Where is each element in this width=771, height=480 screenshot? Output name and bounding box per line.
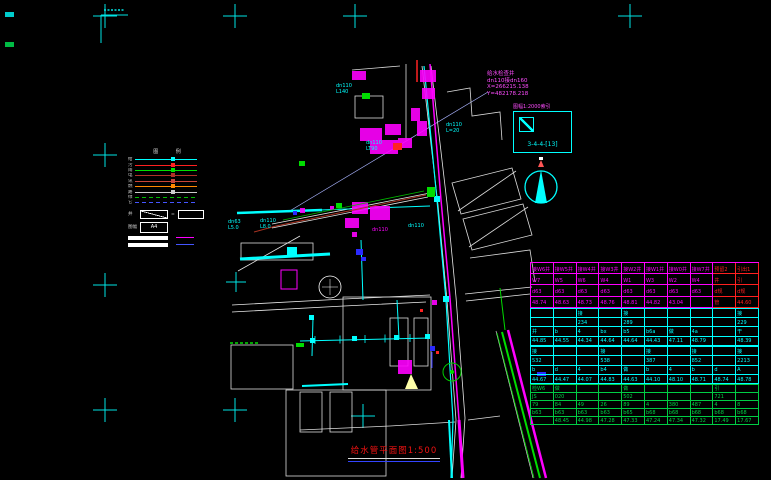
table-cell: d63 [691,285,714,296]
table-cell: 4 [713,401,736,409]
table-cell [668,309,691,318]
table-cell [645,318,668,327]
legend-marker-icon [171,173,175,177]
legend-sample-label: 井 [128,211,140,217]
table-cell: 47.32 [691,417,714,425]
table-cell: d63 [599,285,622,296]
table-cell: W2 [668,274,691,285]
table-cell: 接 [622,309,645,318]
table-cell: 502 [622,393,645,401]
table-cell: 48.39 [736,337,759,346]
ref-line: X=266215.138 [487,84,529,91]
table-cell: 引 [713,385,736,393]
table-cell: 接W2井 [622,263,645,274]
table-cell: 17.49 [713,417,736,425]
table-cell [645,393,668,401]
table-cell: b68 [645,409,668,417]
edge-mark-icon [5,12,14,17]
table-cell: 229 [736,318,759,327]
table-cell: b63 [577,409,600,417]
table-cell: 48.71 [691,375,714,384]
table-cell: W3 [645,274,668,285]
table-cell: 干 [736,327,759,336]
table-cell [691,318,714,327]
water-pipe-nodes [287,196,449,343]
table-cell: 管 [713,297,736,308]
keymap-code: 3-4-4-[13] [514,141,571,148]
table-cell: 538 [599,356,622,365]
table-cell: 做 [622,385,645,393]
table-cell: 检W6 [531,385,554,393]
table-cell: b5 [622,327,645,336]
table-cell: d63 [577,285,600,296]
table-cell: 4 [577,327,600,336]
table-cell: 48.45 [554,417,577,425]
table-cell: b68 [736,409,759,417]
legend-marker-icon [171,163,175,167]
legend-marker-icon [171,190,175,194]
table-cell [713,318,736,327]
table-cell: 44.55 [554,337,577,346]
table-cell: 48.74 [713,375,736,384]
table-cell: 487 [691,401,714,409]
table-cell [668,393,691,401]
edge-mark-icon [5,42,14,47]
table-cell: 532 [531,356,554,365]
table-cell: 47.24 [645,417,668,425]
table-cell: 44.07 [577,375,600,384]
table-cell [622,347,645,356]
table-cell [668,318,691,327]
sewer-pipe-lines [281,64,546,478]
legend-row-label: 路 [128,190,135,195]
table-cell: d63 [622,285,645,296]
table-cell: 48.81 [622,297,645,308]
table-cell: 接W5井 [554,263,577,274]
table-cell [713,347,736,356]
table-cell: 84 [554,401,577,409]
table-cell: 接 [645,347,668,356]
table-cell: JS [531,393,554,401]
legend-line-swatch [135,165,197,166]
pipe-label: dn63 L5.0 [228,220,241,231]
table-cell: b [645,366,668,375]
table-cell: 43.04 [668,297,691,308]
table-cell [736,385,759,393]
table-cell: W4 [691,274,714,285]
table-cell [668,356,691,365]
table-cell [577,356,600,365]
table-cell: 48.73 [577,297,600,308]
frame-size-box: A4 [140,222,168,233]
pipe-label: dn110 L=20 [446,123,462,134]
legend-row-label: 污 [128,163,135,168]
table-cell [691,297,714,308]
table-cell: 387 [645,356,668,365]
north-compass-icon [525,157,557,203]
table-cell: b [554,327,577,336]
legend-row-label: 燃 [128,184,135,189]
table-cell: 8 [736,401,759,409]
table-cell: 44.85 [531,337,554,346]
table-cell: 020 [554,393,577,401]
table-cell: 44.34 [577,337,600,346]
table-cell: d63 [531,285,554,296]
table-cell: 接W0井 [668,263,691,274]
table-cell [599,393,622,401]
table-cell: 48.74 [531,297,554,308]
table-cell [645,385,668,393]
legend-line-swatch [135,186,197,187]
table-cell [668,347,691,356]
pipe-label: dn110 [408,224,424,230]
table-cell [599,309,622,318]
table-cell: 49 [577,401,600,409]
table-cell [599,318,622,327]
table-cell: 井 [531,327,554,336]
table-cell: 接 [736,347,759,356]
table-cell: 44.63 [622,375,645,384]
table-cell: 引 [736,274,759,285]
table-cell: 44.47 [554,375,577,384]
table-cell: 44.67 [531,375,554,384]
legend-line-swatch [135,170,197,171]
table-cell [577,347,600,356]
table-cell: b68 [691,409,714,417]
table-cell: 做 [668,327,691,336]
legend-line-swatch [135,192,197,193]
table-cell [577,393,600,401]
table-cell: W6 [577,274,600,285]
table-cell: 44.64 [622,337,645,346]
table-group: 接接接234289229井b4bxb5b6a做4a干44.8544.5544.3… [530,308,759,346]
table-cell: 48.79 [691,337,714,346]
cad-drawing-canvas: 给水检查井 dn110接dn160 X=266215.138 Y=482178.… [0,0,771,480]
legend-bar-row [128,243,214,247]
table-cell: d规 [736,285,759,296]
legend-frame-row: 图幅 A4 [128,222,214,233]
table-cell: b4 [599,366,622,375]
table-cell: 47.11 [668,337,691,346]
table-cell: 17.67 [736,417,759,425]
table-cell: 接W6井 [531,263,554,274]
table-cell: 47.34 [668,417,691,425]
table-cell: 48.78 [736,375,759,384]
table-cell: 47.33 [622,417,645,425]
table-cell [668,385,691,393]
table-cell: 79 [531,401,554,409]
table-cell: 48.76 [599,297,622,308]
road-lines [232,66,533,478]
table-cell [577,385,600,393]
table-cell: 721 [713,393,736,401]
blue-utility-nodes [293,211,546,376]
legend-sample-row: 井 = [128,210,214,219]
table-group: 接接接接接5325383878522213bd4b4做b4bdA44.6744.… [530,346,759,384]
pipe-label: dn110 L8.0 [260,219,276,230]
legend-footer: 井 = 图幅 A4 [128,210,214,247]
legend-row-label: 讯 [128,179,135,184]
table-cell: b68 [713,409,736,417]
table-cell: 44.64 [599,337,622,346]
table-cell [645,309,668,318]
table-cell [713,309,736,318]
table-cell: d规 [713,285,736,296]
legend-line-swatch [135,175,197,176]
table-cell: d63 [645,285,668,296]
table-cell: 做 [554,385,577,393]
table-cell: 4 [645,401,668,409]
table-cell: d63 [554,285,577,296]
table-cell: 26 [599,401,622,409]
legend-row: 它 [128,200,214,205]
ref-line: Y=482178.218 [487,91,529,98]
table-cell: 预留2 [713,263,736,274]
magenta-line-icon [176,237,194,238]
table-cell [554,356,577,365]
table-cell: b65 [622,409,645,417]
legend-header: 图 例 [128,148,214,155]
scale-bar-icon [128,236,168,240]
table-cell: d [713,366,736,375]
table-group: 检W6做做引JS0205027217984492689438048748b63b… [530,384,759,425]
table-cell: b [691,366,714,375]
table-cell: d [554,366,577,375]
pipe-data-table: 接W6井接W5井接W4井接W3井接W2井接W1井接W0井接W7井预留2引出1W7… [530,262,759,425]
table-cell [531,417,554,425]
table-cell [713,356,736,365]
diagonal-box-icon [140,210,168,219]
table-cell: 接W4井 [577,263,600,274]
table-cell [599,385,622,393]
table-cell: 289 [622,318,645,327]
table-cell: 接 [736,309,759,318]
legend-marker-icon [171,179,175,183]
legend-line-swatch [135,159,197,160]
pipe-label: dn110 [372,228,388,234]
table-cell: d63 [668,285,691,296]
hatch-square-icon [519,117,534,132]
table-cell: b6a [645,327,668,336]
hatched-structures [300,70,437,374]
table-cell: 44.83 [599,375,622,384]
equals-icon: = [171,212,175,217]
table-cell: W1 [622,274,645,285]
reference-info-block: 给水检查井 dn110接dn160 X=266215.138 Y=482178.… [487,71,529,97]
table-cell: 2213 [736,356,759,365]
table-cell: bx [599,327,622,336]
table-cell: 接 [691,347,714,356]
legend-marker-icon [171,184,175,188]
table-cell: 接 [599,347,622,356]
table-cell: 48.63 [554,297,577,308]
table-cell [554,347,577,356]
legend-row-label: 它 [128,200,135,205]
keymap-index: 图幅1:2000索引 3-4-4-[13] [513,103,572,153]
table-cell: 44.82 [645,297,668,308]
table-cell: b68 [668,409,691,417]
keymap-box: 3-4-4-[13] [513,111,572,153]
title-underline [348,461,440,462]
table-cell: W4 [599,274,622,285]
legend-line-swatch [135,197,197,198]
table-cell: 44.60 [736,297,759,308]
building-outlines [231,64,535,476]
table-cell: 380 [668,401,691,409]
table-cell: W7 [531,274,554,285]
table-cell [622,356,645,365]
table-cell [554,309,577,318]
table-cell: 89 [622,401,645,409]
table-cell: b63 [554,409,577,417]
table-cell: 4 [668,366,691,375]
legend-row-label: 绿 [128,195,135,200]
table-cell: b63 [599,409,622,417]
legend-panel: 图 例 给污雨电讯燃路绿它 井 = 图幅 A4 [128,148,214,247]
table-cell: 接 [577,309,600,318]
legend-marker-icon [171,157,175,161]
pipe-label: dn110 L140 [336,84,352,95]
table-cell: 接W3井 [599,263,622,274]
table-cell: A [736,366,759,375]
table-cell: 接W7井 [691,263,714,274]
table-cell: 4 [577,366,600,375]
legend-row-label: 雨 [128,168,135,173]
legend-frame-label: 图幅 [128,224,140,230]
keymap-title: 图幅1:2000索引 [513,103,572,110]
red-markers [393,143,439,354]
blue-line-icon [176,244,194,245]
table-cell: 井 [713,274,736,285]
table-cell: 852 [691,356,714,365]
legend-marker-icon [171,168,175,172]
table-cell: 44.98 [577,417,600,425]
legend-line-swatch [135,202,197,203]
pipe-label: dn110 LT90 [366,141,382,152]
table-cell [691,393,714,401]
legend-rows: 给污雨电讯燃路绿它 [128,157,214,206]
table-cell: 44.10 [645,375,668,384]
legend-row-label: 给 [128,157,135,162]
table-cell: 48.10 [668,375,691,384]
table-cell [691,309,714,318]
table-cell [531,318,554,327]
title-underline [348,458,440,459]
table-cell: 接 [531,347,554,356]
legend-bar-row [128,236,214,240]
table-group: 接W6井接W5井接W4井接W3井接W2井接W1井接W0井接W7井预留2引出1W7… [530,262,759,308]
table-cell: 引出1 [736,263,759,274]
table-cell [713,337,736,346]
table-cell: 4a [691,327,714,336]
table-cell [691,385,714,393]
table-cell: b [531,366,554,375]
table-cell [554,318,577,327]
table-cell [736,393,759,401]
legend-row-label: 电 [128,173,135,178]
table-cell: 234 [577,318,600,327]
legend-line-swatch [135,181,197,182]
table-cell [531,309,554,318]
scale-bar-icon [128,243,168,247]
table-cell: b63 [531,409,554,417]
table-cell: 做 [622,366,645,375]
sheet-title: 给水管平面图1:500 [338,444,450,456]
table-cell: 44.43 [645,337,668,346]
empty-box-icon [178,210,204,219]
table-cell [713,327,736,336]
table-cell: 47.28 [599,417,622,425]
table-cell: W5 [554,274,577,285]
table-cell: 接W1井 [645,263,668,274]
